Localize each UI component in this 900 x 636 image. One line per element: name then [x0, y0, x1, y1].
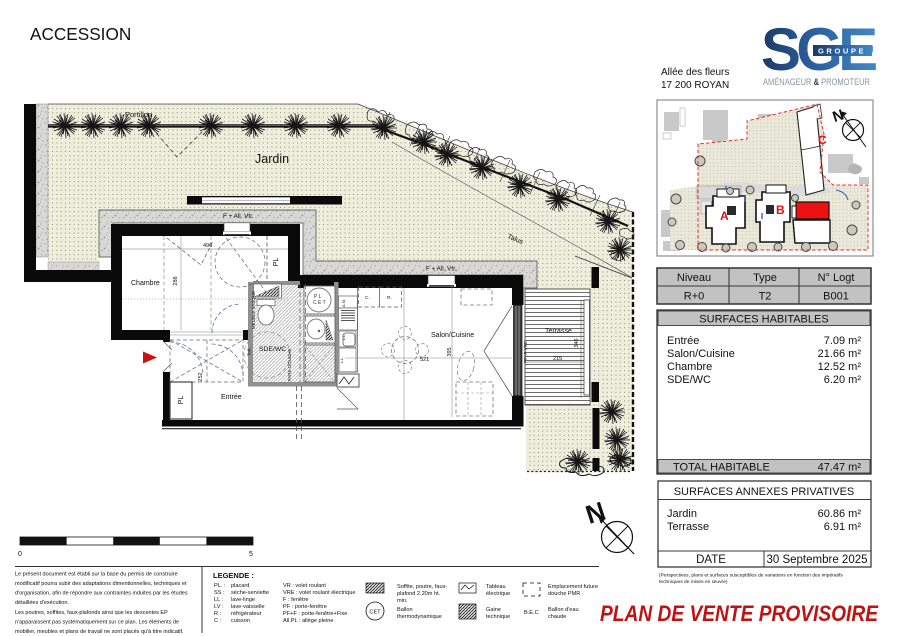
svg-text:All.PL : allège pleine: All.PL : allège pleine: [283, 618, 333, 624]
svg-text:AMÉNAGEUR & PROMOTEUR: AMÉNAGEUR & PROMOTEUR: [763, 77, 870, 87]
svg-text:215: 215: [553, 356, 562, 362]
svg-text:Terrasse: Terrasse: [667, 521, 709, 533]
svg-text:SURFACES ANNEXES PRIVATIVES: SURFACES ANNEXES PRIVATIVES: [674, 486, 855, 498]
svg-text:SURFACES HABITABLES: SURFACES HABITABLES: [699, 314, 828, 326]
svg-text:496: 496: [203, 243, 212, 249]
svg-text:A: A: [720, 209, 729, 223]
svg-text:C.: C.: [365, 295, 370, 301]
svg-text:modificatif pourra subir des a: modificatif pourra subir des adaptations…: [15, 581, 187, 587]
svg-text:n'apparaissent pas systématiqu: n'apparaissent pas systématiquement sur …: [15, 619, 179, 625]
svg-text:C E T: C E T: [313, 300, 326, 306]
svg-text:Le présent document est établi: Le présent document est établi sur la ba…: [15, 572, 178, 578]
svg-text:F + All. Vtr.: F + All. Vtr.: [426, 266, 457, 273]
svg-text:mobilier, meubles et plans de: mobilier, meubles et plans de travail ne…: [15, 629, 184, 635]
svg-text:TOTAL HABITABLE: TOTAL HABITABLE: [673, 462, 770, 474]
svg-text:thermodynamique: thermodynamique: [397, 614, 442, 620]
svg-text:douche PMR: douche PMR: [548, 591, 580, 597]
svg-text:Emplacement future: Emplacement future: [548, 584, 598, 590]
svg-text:Allée des fleurs: Allée des fleurs: [661, 67, 729, 78]
svg-text:techniques de mises en œuvre): techniques de mises en œuvre): [659, 579, 728, 585]
svg-text:plafond 2.20m ht.: plafond 2.20m ht.: [397, 591, 441, 597]
svg-text:60.86 m²: 60.86 m²: [818, 508, 862, 520]
svg-text:cuisson: cuisson: [231, 618, 250, 624]
svg-text:GROUPE: GROUPE: [818, 47, 866, 56]
svg-text:min.: min.: [397, 598, 408, 604]
svg-text:Type: Type: [753, 272, 777, 284]
svg-text:17 200 ROYAN: 17 200 ROYAN: [661, 80, 729, 91]
svg-text:L.L.: L.L.: [339, 357, 344, 364]
svg-text:F + All. Vtr.: F + All. Vtr.: [223, 213, 254, 220]
svg-text:B: B: [776, 203, 785, 217]
svg-text:Niveau: Niveau: [677, 272, 711, 284]
svg-text:DATE: DATE: [696, 554, 726, 566]
svg-text:LV :: LV :: [214, 604, 224, 610]
svg-text:LL :: LL :: [214, 597, 224, 603]
svg-text:C :: C :: [214, 618, 222, 624]
svg-text:PL: PL: [273, 258, 280, 267]
svg-text:Chambre: Chambre: [131, 280, 160, 287]
svg-text:R.: R.: [387, 295, 392, 301]
svg-text:C: C: [818, 133, 827, 147]
svg-text:PF : porte-fenêtre: PF : porte-fenêtre: [283, 604, 327, 610]
svg-text:lave-vaisselle: lave-vaisselle: [231, 604, 265, 610]
svg-text:R :: R :: [214, 611, 222, 617]
svg-text:Entrée: Entrée: [667, 335, 699, 347]
svg-text:placard: placard: [231, 583, 249, 589]
svg-text:Les poutres, soffites, faux-pl: Les poutres, soffites, faux-plafonds ain…: [15, 610, 168, 616]
svg-text:réfrigérateur: réfrigérateur: [231, 611, 262, 617]
svg-text:Jardin: Jardin: [255, 152, 289, 166]
svg-text:Ballon d'eau: Ballon d'eau: [548, 607, 579, 613]
svg-text:PL: PL: [178, 396, 185, 405]
svg-text:MEUBLE VASQUE: MEUBLE VASQUE: [251, 291, 256, 329]
svg-text:N° Logt: N° Logt: [818, 272, 855, 284]
svg-text:lave-linge: lave-linge: [231, 597, 255, 603]
svg-text:21.66 m²: 21.66 m²: [818, 348, 862, 360]
svg-text:6.20 m²: 6.20 m²: [824, 374, 862, 386]
svg-text:12.52 m²: 12.52 m²: [818, 361, 862, 373]
svg-text:30 Septembre 2025: 30 Septembre 2025: [766, 554, 867, 566]
svg-text:Entrée: Entrée: [221, 394, 242, 401]
svg-text:Salon/Cuisine: Salon/Cuisine: [431, 332, 474, 339]
svg-text:SS :: SS :: [214, 590, 225, 596]
svg-text:Portillon: Portillon: [125, 110, 152, 119]
svg-text:détaillées d'exécution.: détaillées d'exécution.: [15, 600, 69, 606]
svg-text:PF+F : porte-fenêtre+Fixe: PF+F : porte-fenêtre+Fixe: [283, 611, 347, 617]
svg-text:47.47 m²: 47.47 m²: [818, 462, 862, 474]
svg-text:CET: CET: [369, 610, 381, 616]
svg-text:PF+F·VRE: PF+F·VRE: [523, 341, 528, 363]
svg-text:5: 5: [249, 551, 253, 558]
svg-text:SDE/WC: SDE/WC: [667, 374, 711, 386]
svg-text:(Perspectives, plans et surfac: (Perspectives, plans et surfaces suscept…: [659, 573, 843, 579]
svg-text:chaude: chaude: [548, 614, 566, 620]
svg-text:LEGENDE :: LEGENDE :: [213, 571, 254, 580]
svg-text:Gaine: Gaine: [486, 607, 501, 613]
svg-text:VR : volet roulant: VR : volet roulant: [283, 583, 326, 589]
svg-text:ACCESSION: ACCESSION: [30, 24, 131, 44]
svg-text:6.91 m²: 6.91 m²: [824, 521, 862, 533]
svg-text:521: 521: [420, 357, 429, 363]
svg-text:A.M.: A.M.: [341, 299, 346, 307]
svg-text:B001: B001: [823, 291, 849, 303]
svg-text:0: 0: [18, 551, 22, 558]
svg-text:395: 395: [447, 347, 453, 356]
svg-text:252: 252: [198, 372, 204, 381]
svg-text:VRE : volet roulant électrique: VRE : volet roulant électrique: [283, 590, 355, 596]
svg-text:R+0: R+0: [684, 291, 705, 303]
svg-text:sèche-serviette: sèche-serviette: [231, 590, 269, 596]
svg-text:technique: technique: [486, 614, 510, 620]
svg-text:346: 346: [574, 338, 580, 347]
svg-text:T2: T2: [759, 291, 772, 303]
svg-text:Chambre: Chambre: [667, 361, 712, 373]
svg-text:7.09 m²: 7.09 m²: [824, 335, 862, 347]
svg-text:PARE-DOUCHE: PARE-DOUCHE: [287, 349, 292, 382]
svg-text:Jardin: Jardin: [667, 508, 697, 520]
svg-text:PL. :: PL. :: [214, 583, 226, 589]
svg-text:L.L.: L.L.: [341, 334, 346, 341]
svg-text:d'organisation, afin de répond: d'organisation, afin de répondre aux con…: [15, 591, 188, 597]
svg-text:Toil.: Toil.: [247, 348, 252, 356]
svg-text:Soffite, poutre, faux-: Soffite, poutre, faux-: [397, 584, 447, 590]
svg-text:Terrasse: Terrasse: [545, 328, 572, 335]
svg-text:électrique: électrique: [486, 591, 510, 597]
svg-text:Salon/Cuisine: Salon/Cuisine: [667, 348, 735, 360]
svg-text:Ballon: Ballon: [397, 607, 413, 613]
svg-text:288: 288: [173, 276, 179, 285]
svg-text:Tableau: Tableau: [486, 584, 506, 590]
svg-text:SDE/WC: SDE/WC: [259, 346, 286, 353]
svg-text:B.E.C: B.E.C: [524, 610, 539, 616]
svg-text:PLAN DE VENTE PROVISOIRE: PLAN DE VENTE PROVISOIRE: [600, 601, 879, 626]
svg-text:F : fenêtre: F : fenêtre: [283, 597, 309, 603]
